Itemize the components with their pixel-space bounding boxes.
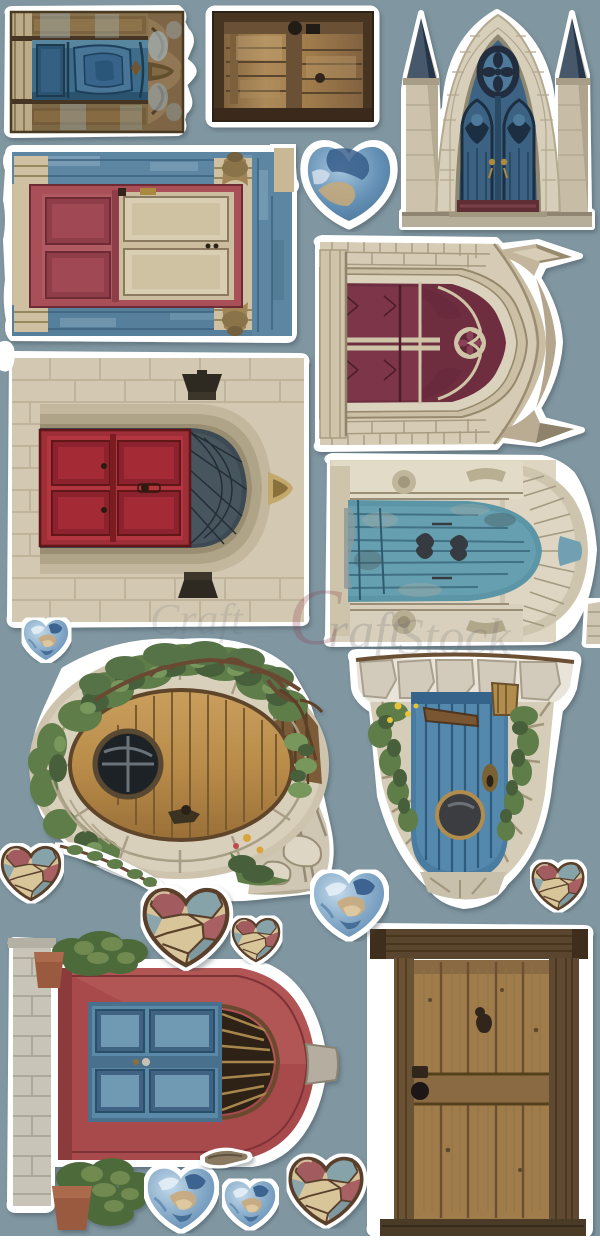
svg-text:raft: raft	[328, 603, 405, 660]
svg-text:Stock: Stock	[398, 609, 512, 666]
svg-text:Craft: Craft	[150, 595, 245, 644]
